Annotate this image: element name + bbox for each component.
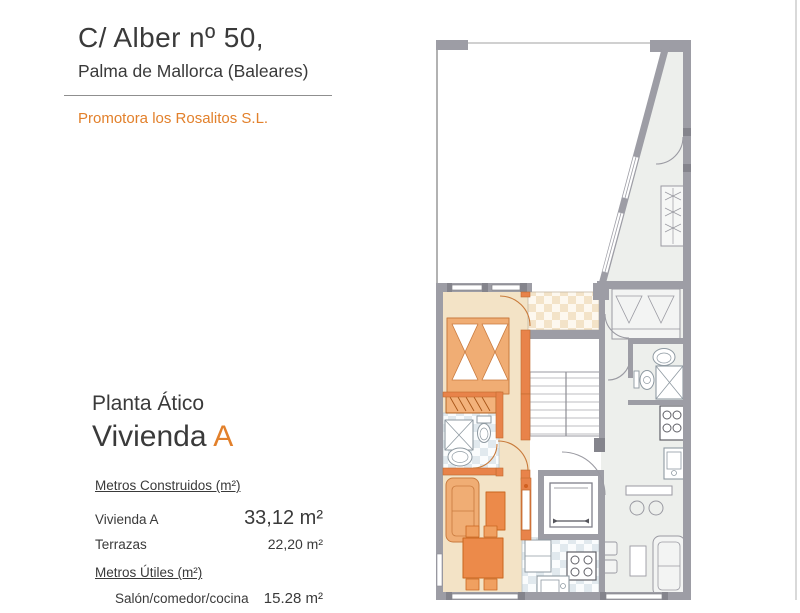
washbasin-icon xyxy=(448,448,472,466)
wardrobe-icon xyxy=(661,186,685,246)
sofa-icon xyxy=(653,536,685,596)
toilet-icon xyxy=(477,416,491,443)
toilet-icon xyxy=(634,371,654,390)
fridge-icon xyxy=(522,484,530,530)
staircase xyxy=(530,372,600,436)
stove-icon xyxy=(567,552,596,580)
washbasin-icon xyxy=(653,349,675,366)
coffee-table-icon xyxy=(486,492,505,530)
shower-icon xyxy=(656,366,683,399)
shower-icon xyxy=(445,420,473,450)
bed-icon xyxy=(612,289,680,339)
elevator xyxy=(541,473,601,537)
kitchen-sink-icon xyxy=(664,448,684,479)
stove-icon xyxy=(660,406,684,440)
wardrobe-icon xyxy=(446,395,496,413)
tiled-terrace xyxy=(528,292,599,330)
floor-plan xyxy=(0,0,800,600)
bed-icon xyxy=(447,318,509,394)
page-edge xyxy=(795,0,797,600)
